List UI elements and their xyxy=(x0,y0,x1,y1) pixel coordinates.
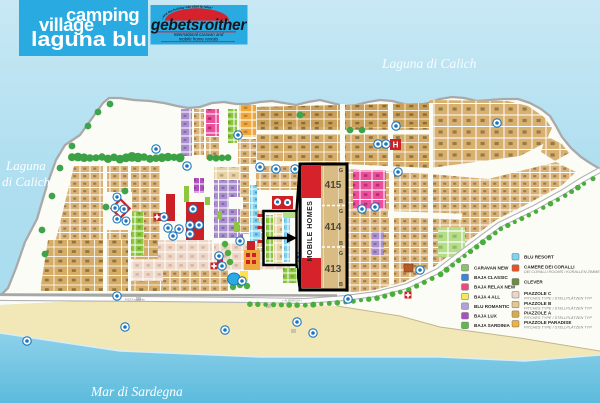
svg-text:mobile home rentals: mobile home rentals xyxy=(179,36,219,41)
svg-text:BAJA LUX: BAJA LUX xyxy=(474,314,498,319)
svg-text:PIAZZOLE PARADISE: PIAZZOLE PARADISE xyxy=(524,320,571,325)
svg-text:PISTA ciclabile: PISTA ciclabile xyxy=(125,298,145,302)
svg-text:CLEVER: CLEVER xyxy=(524,280,543,285)
svg-text:G: G xyxy=(339,168,343,174)
svg-text:B: B xyxy=(339,282,343,288)
svg-text:PIAZZOLE C: PIAZZOLE C xyxy=(524,291,552,296)
svg-text:BAJA CLASSIC: BAJA CLASSIC xyxy=(474,275,508,280)
svg-text:G: G xyxy=(339,209,343,215)
svg-text:BAJA 4 ALL: BAJA 4 ALL xyxy=(474,294,500,299)
svg-text:413: 413 xyxy=(325,264,342,275)
svg-text:H: H xyxy=(393,141,399,150)
svg-text:PIAZZOLE A: PIAZZOLE A xyxy=(524,310,552,315)
svg-text:DEI CORALLI ROOMS / KORALLEN Z: DEI CORALLI ROOMS / KORALLEN ZIMMER xyxy=(524,270,600,274)
svg-text:Mar di Sardegna: Mar di Sardegna xyxy=(90,384,183,399)
svg-text:di Calich: di Calich xyxy=(2,174,50,189)
svg-text:CARAVAN NEW: CARAVAN NEW xyxy=(474,266,509,271)
svg-text:Laguna: Laguna xyxy=(5,158,46,173)
svg-text:G: G xyxy=(339,251,343,257)
svg-text:Laguna di Calich: Laguna di Calich xyxy=(381,56,477,71)
svg-text:414: 414 xyxy=(325,222,342,233)
svg-text:PITCHES TYPE / STELLPLÄTZEN TY: PITCHES TYPE / STELLPLÄTZEN TYP xyxy=(524,326,592,330)
svg-text:BAJA SARDINIA: BAJA SARDINIA xyxy=(474,323,510,328)
svg-text:BLU RESORT: BLU RESORT xyxy=(524,255,554,260)
svg-text:BAJA RELAX NEW: BAJA RELAX NEW xyxy=(474,285,516,290)
svg-text:415: 415 xyxy=(325,180,342,191)
svg-text:MOBILE HOMES: MOBILE HOMES xyxy=(307,201,314,262)
svg-text:B: B xyxy=(339,241,343,247)
svg-text:+ ALBERGHI +: + ALBERGHI + xyxy=(282,299,302,303)
svg-text:CAMERE DEI CORALLI: CAMERE DEI CORALLI xyxy=(524,264,575,269)
svg-text:PIAZZOLE B: PIAZZOLE B xyxy=(524,301,552,306)
svg-text:B: B xyxy=(339,199,343,205)
svg-text:BLU ROMANTIC: BLU ROMANTIC xyxy=(474,304,510,309)
svg-text:laguna blu: laguna blu xyxy=(31,28,147,51)
